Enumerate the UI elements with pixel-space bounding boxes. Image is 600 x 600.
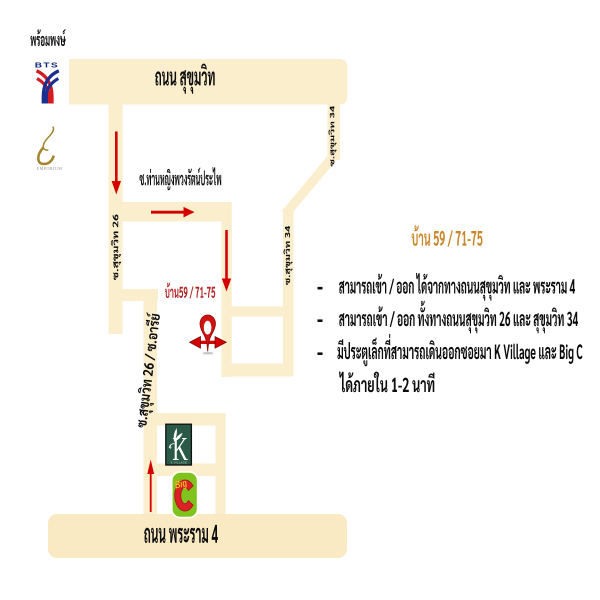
svg-text:BTS: BTS (35, 61, 59, 69)
svg-text:K VILLAGE: K VILLAGE (171, 461, 187, 464)
svg-text:EMPORIUM: EMPORIUM (37, 166, 63, 171)
